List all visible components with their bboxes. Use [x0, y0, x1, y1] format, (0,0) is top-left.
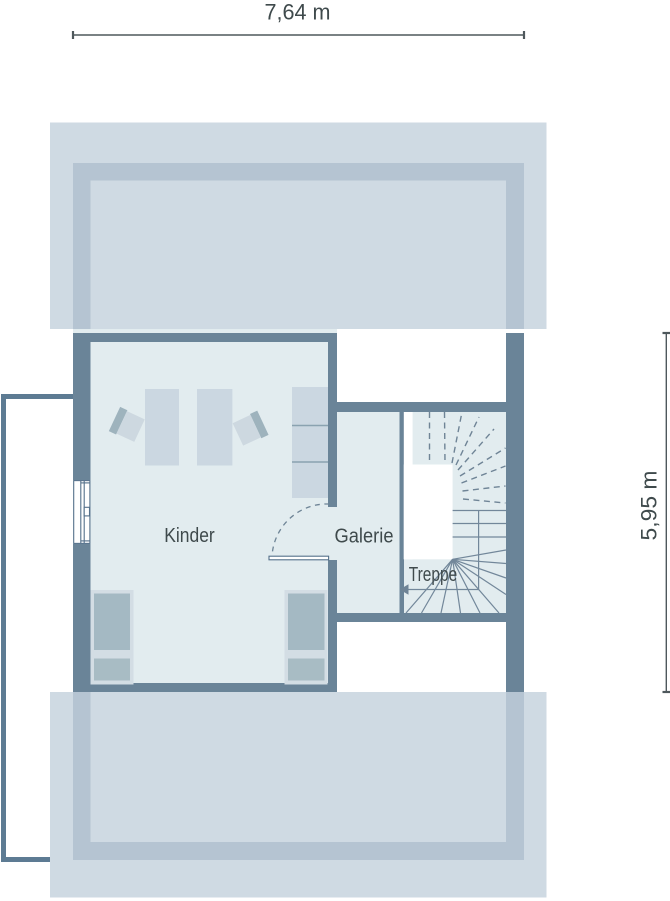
- svg-text:Kinder: Kinder: [164, 524, 215, 547]
- svg-text:Galerie: Galerie: [335, 525, 394, 548]
- svg-text:5,95 m: 5,95 m: [637, 471, 662, 541]
- svg-text:7,64 m: 7,64 m: [265, 0, 331, 25]
- svg-text:Treppe: Treppe: [409, 563, 458, 586]
